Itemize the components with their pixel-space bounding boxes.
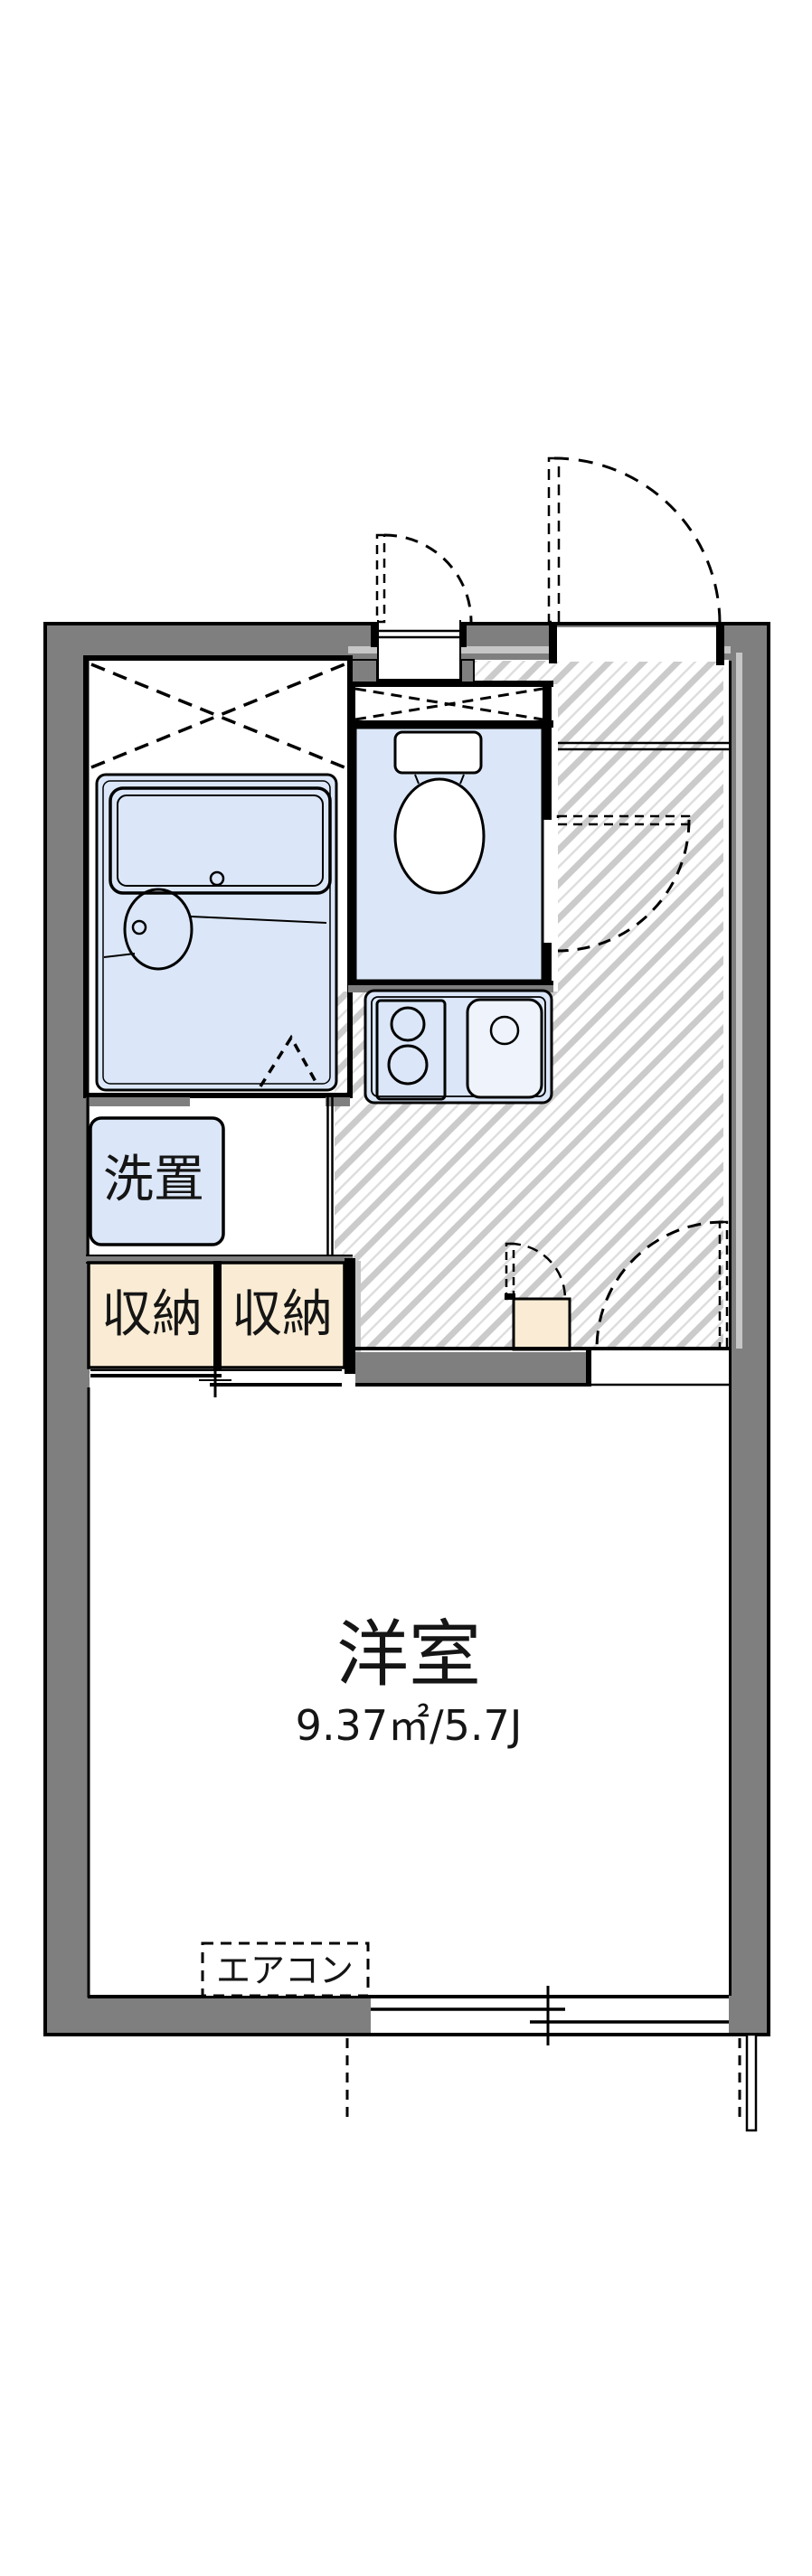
balcony-divider-right-solid [747, 2035, 756, 2130]
boundary-stripe-right [736, 653, 742, 1349]
hatch-corridor [558, 661, 723, 1349]
closet-left-label: 収納 [101, 1285, 203, 1344]
toilet-wall-bottom [348, 981, 553, 985]
toilet-tank [395, 732, 481, 773]
balcony-dividers [347, 2035, 756, 2130]
washroom-wall-left-seg [86, 1097, 190, 1106]
meter-box-side-wall-right [461, 660, 474, 682]
outer-wall-bottom [43, 1997, 371, 2036]
closet-side-wall [345, 1258, 355, 1374]
closet-divider [213, 1261, 222, 1369]
hall-room-wall [355, 1349, 729, 1387]
floor-plan-canvas: 洗置 収納 収納 [0, 0, 812, 2576]
entrance-jamb-left [549, 624, 557, 663]
entrance-door-leaf [549, 458, 559, 622]
kitchen [365, 991, 552, 1103]
meter-box-jamb-left [371, 624, 378, 647]
bathroom [86, 658, 350, 1095]
outer-wall-left [43, 622, 90, 2036]
meter-box-door-swing [384, 535, 471, 622]
entrance-jamb-right [716, 624, 724, 665]
outer-wall-right [729, 622, 770, 2036]
meter-box-recess [377, 618, 461, 684]
closets: 収納 収納 [89, 1258, 361, 1397]
washer-space-label: 洗置 [103, 1151, 204, 1209]
water-heater-box [514, 1299, 570, 1349]
inner-wall-line-right [729, 661, 732, 1996]
entrance-door-swing [554, 458, 720, 624]
meter-box-door-leaf [377, 535, 384, 622]
bathroom-ceiling-x [91, 664, 345, 767]
closet-right-label: 収納 [231, 1285, 333, 1344]
hall-room-wall-post [586, 1350, 591, 1387]
meter-box-jamb-right [459, 624, 467, 647]
room-label: 洋室 [336, 1612, 481, 1697]
entrance-opening [556, 627, 717, 662]
washroom-wall-right-seg [326, 1097, 350, 1106]
aircon-label: エアコン [216, 1951, 354, 1990]
hall-room-wall-gray [355, 1352, 590, 1385]
overhead-cabinet-x [355, 689, 543, 719]
window [371, 1986, 729, 2045]
bathroom-floor [97, 775, 336, 1090]
room-area-label: 9.37㎡/5.7J [296, 1701, 523, 1750]
main-room: 洋室 9.37㎡/5.7J エアコン [88, 1387, 729, 1998]
sink [467, 1000, 542, 1097]
floor-plan-svg: 洗置 収納 収納 [0, 0, 812, 2576]
washroom-right-wall [328, 1095, 333, 1258]
meter-box-side-wall-left [352, 660, 377, 682]
toilet-bowl [395, 779, 484, 893]
meter-box-bottom [371, 679, 467, 687]
washroom: 洗置 [86, 1095, 353, 1263]
toilet-wall-right-upper [543, 681, 552, 820]
